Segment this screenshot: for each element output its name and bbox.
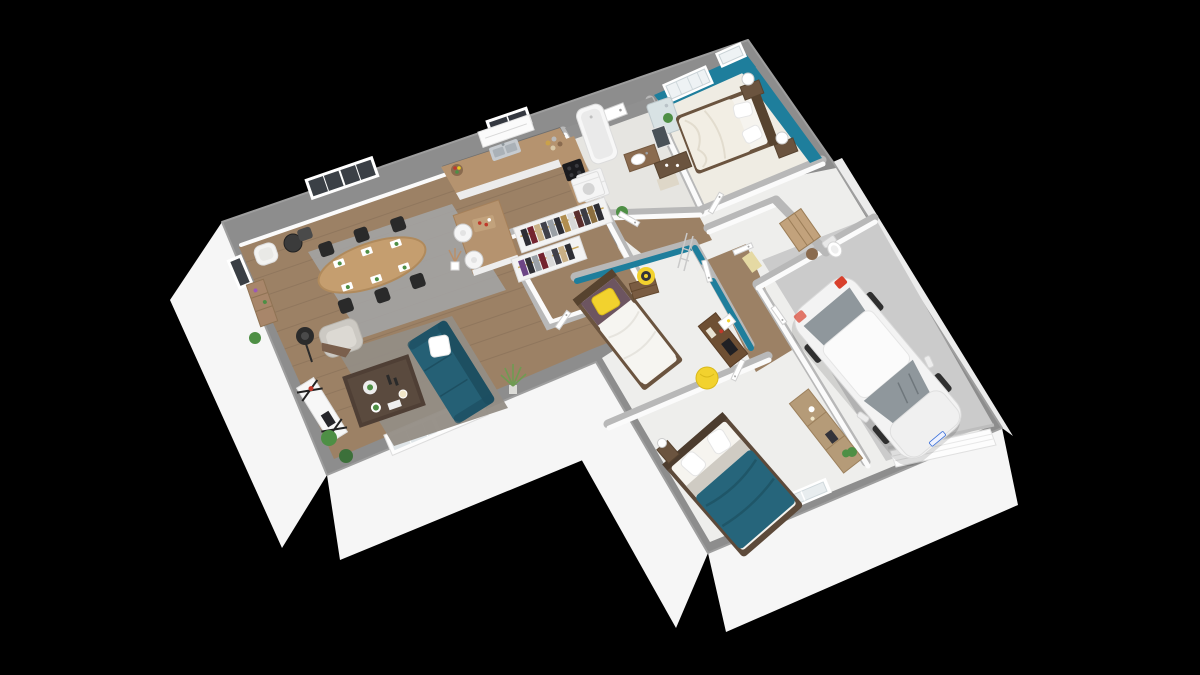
ball-lamp: [742, 73, 754, 85]
basket: [806, 248, 818, 260]
ball-lamp: [776, 132, 788, 144]
bedroom3-lamp: [658, 439, 667, 448]
plant-near-window: [339, 449, 353, 463]
fruit-bowl: [451, 164, 463, 176]
yellow-beanbag: [696, 367, 718, 389]
floorplan-screenshot: [0, 0, 1200, 675]
round-yellow-wall-art: [637, 267, 655, 285]
floorplan-svg: [0, 0, 1200, 675]
plant-pot: [249, 332, 261, 344]
master-plant: [663, 113, 673, 123]
garage-plant: [847, 447, 857, 457]
white-cushion: [428, 335, 451, 358]
plant-near-tv: [321, 430, 337, 446]
